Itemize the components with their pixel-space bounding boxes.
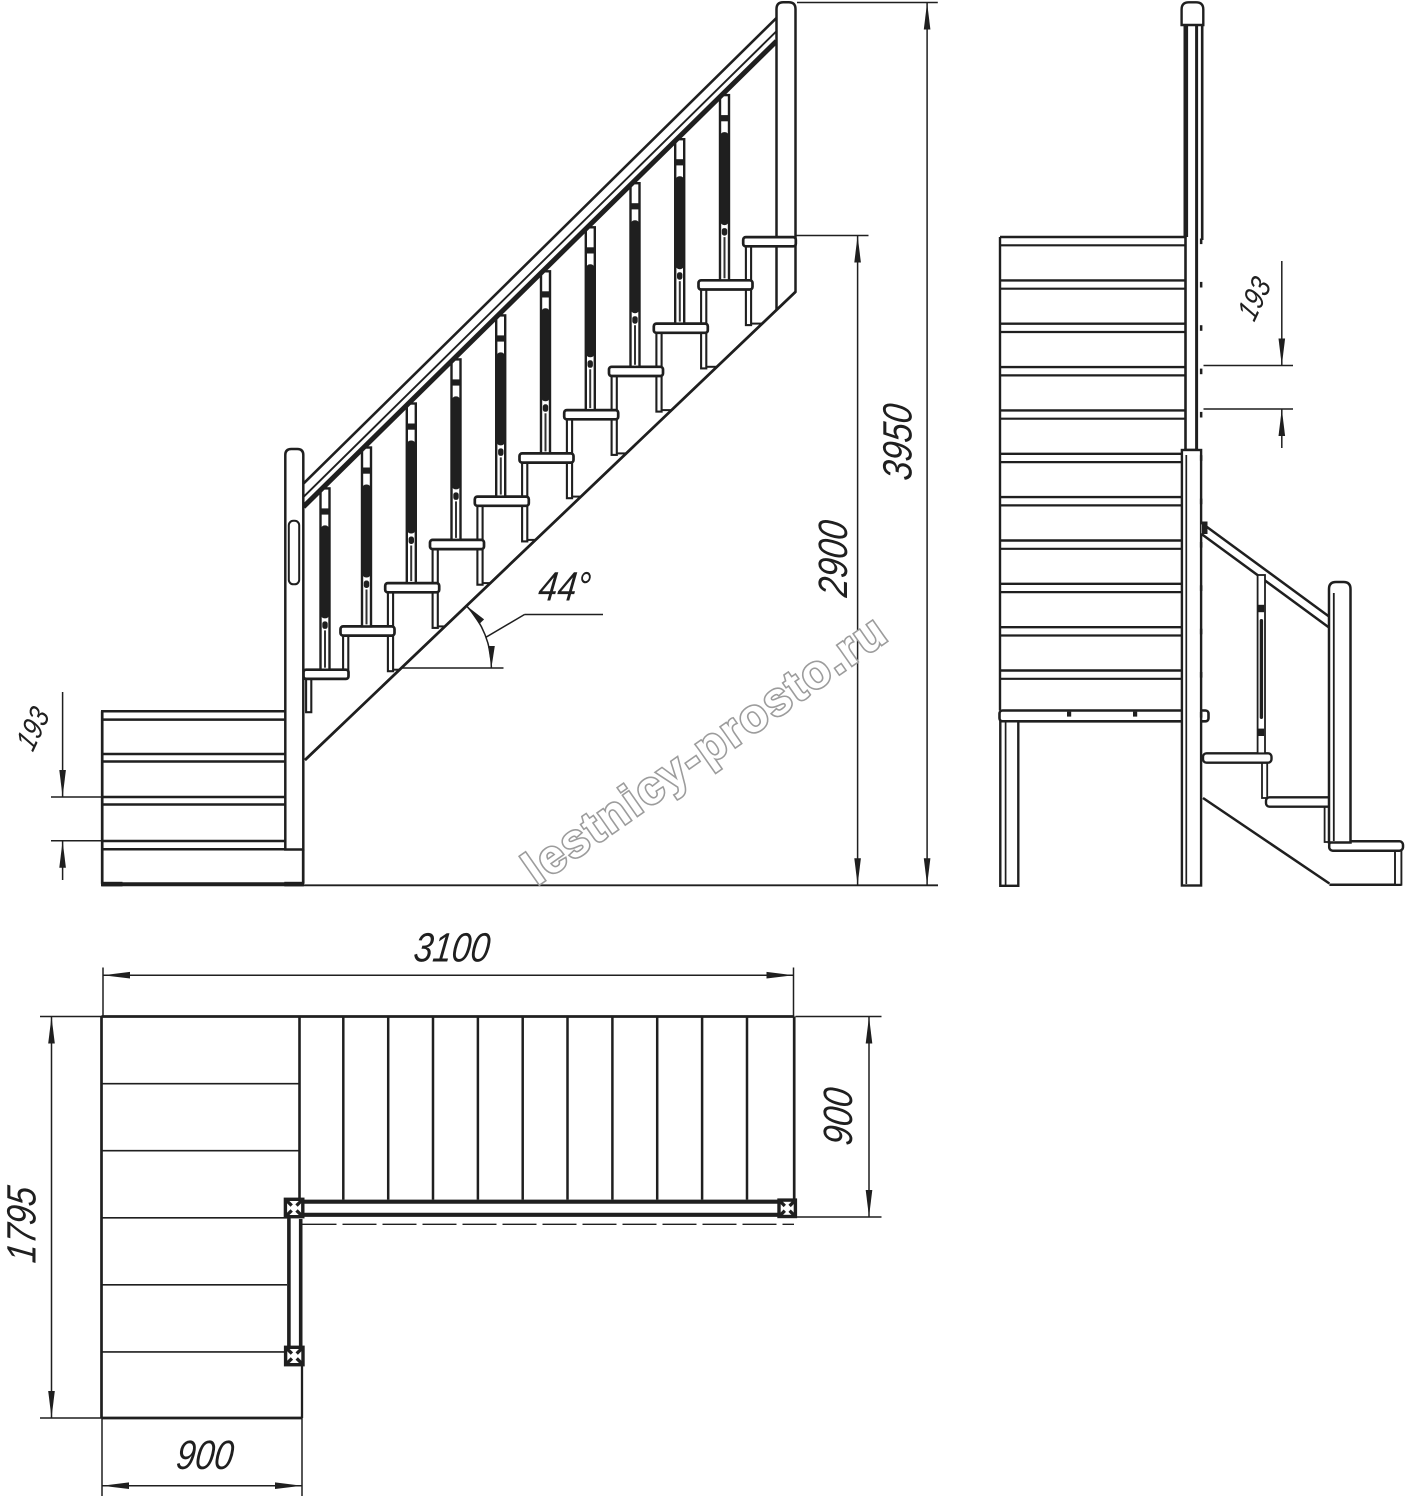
svg-text:1795: 1795 [0,1183,45,1265]
svg-text:900: 900 [174,1433,236,1479]
svg-text:3950: 3950 [876,401,922,482]
svg-text:44°: 44° [536,565,593,611]
svg-text:900: 900 [816,1085,862,1147]
svg-text:2900: 2900 [811,518,857,600]
svg-text:3100: 3100 [411,926,492,972]
